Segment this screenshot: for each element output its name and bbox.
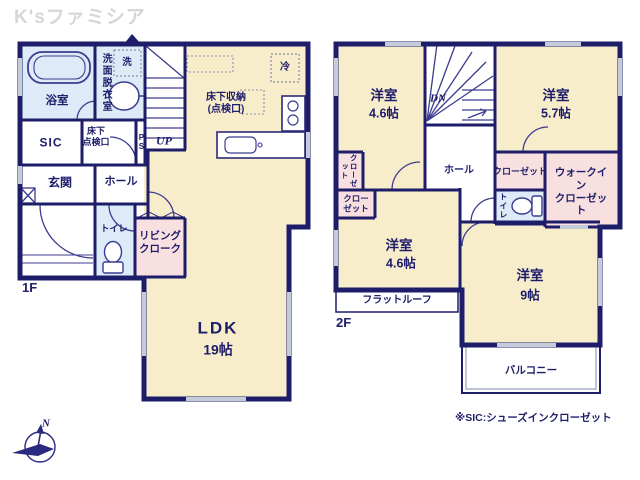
room-size-ldk: 19帖 (203, 341, 233, 358)
floor-label-2f: 2F (336, 315, 351, 331)
porch-steps (22, 255, 93, 263)
label-underfloor-storage: 床下収納 (点検口) (206, 92, 246, 116)
label-fridge: 冷 (280, 62, 290, 74)
room-size-se: 9帖 (520, 288, 539, 303)
room-label-se: 洋室 (517, 268, 544, 284)
stove-icon (282, 96, 305, 131)
floorplan-page: K'sファミシア 浴室 洗面脱衣室 洗 UP 床下収納 (点検口) 冷 SIC … (0, 0, 640, 480)
compass-north-label: N (42, 417, 50, 430)
vent-marker (124, 34, 141, 44)
room-label-bath: 浴室 (46, 94, 69, 108)
room-label-ne: 洋室 (543, 88, 570, 104)
label-closet-mid: クローゼット (493, 167, 547, 178)
room-label-toilet-2f: トイレ (498, 193, 508, 220)
room-label-hall-2f: ホール (444, 165, 474, 177)
floor-label-1f: 1F (22, 280, 37, 296)
room-label-nw: 洋室 (371, 88, 398, 104)
room-label-living-closet: リビング クローク (139, 230, 181, 256)
room-label-sic: SIC (39, 136, 62, 151)
kitchen-counter-icon (217, 132, 305, 158)
room-label-entrance: 玄関 (48, 176, 72, 191)
label-closet-w: クロー ゼット (343, 194, 369, 215)
toilet-2f-icon (512, 196, 542, 216)
label-walkin-closet: ウォークイン クローゼット (552, 166, 611, 217)
label-ps: PS (136, 133, 146, 151)
room-label-hall-1f: ホール (105, 175, 138, 188)
label-stairs-dn: DN (430, 92, 446, 105)
floorplan-drawing (0, 0, 640, 480)
label-flat-roof: フラットルーフ (362, 295, 431, 307)
footnote-sic: ※SIC:シューズインクローゼット (455, 412, 612, 425)
label-balcony: バルコニー (505, 365, 557, 378)
label-stairs-up: UP (156, 134, 172, 149)
room-size-nw: 4.6帖 (369, 106, 399, 121)
label-washer: 洗 (122, 57, 132, 69)
staircase-1f (146, 46, 184, 138)
room-label-ldk: LDK (198, 319, 239, 340)
label-closet-nw: クローゼット (340, 154, 358, 188)
room-label-toilet-1f: トイレ (100, 224, 127, 235)
toilet-1f-icon (103, 242, 123, 274)
entrance-pillar-icon (21, 188, 35, 203)
room-label-washroom: 洗面脱衣室 (99, 53, 111, 113)
staircase-2f (427, 44, 495, 121)
room-size-sw: 4.6帖 (386, 256, 416, 271)
watermark-logo: K'sファミシア (14, 6, 146, 29)
room-label-sw: 洋室 (386, 238, 413, 254)
room-size-ne: 5.7帖 (541, 106, 571, 121)
label-underfloor-hatch: 床下 点検口 (82, 126, 109, 148)
